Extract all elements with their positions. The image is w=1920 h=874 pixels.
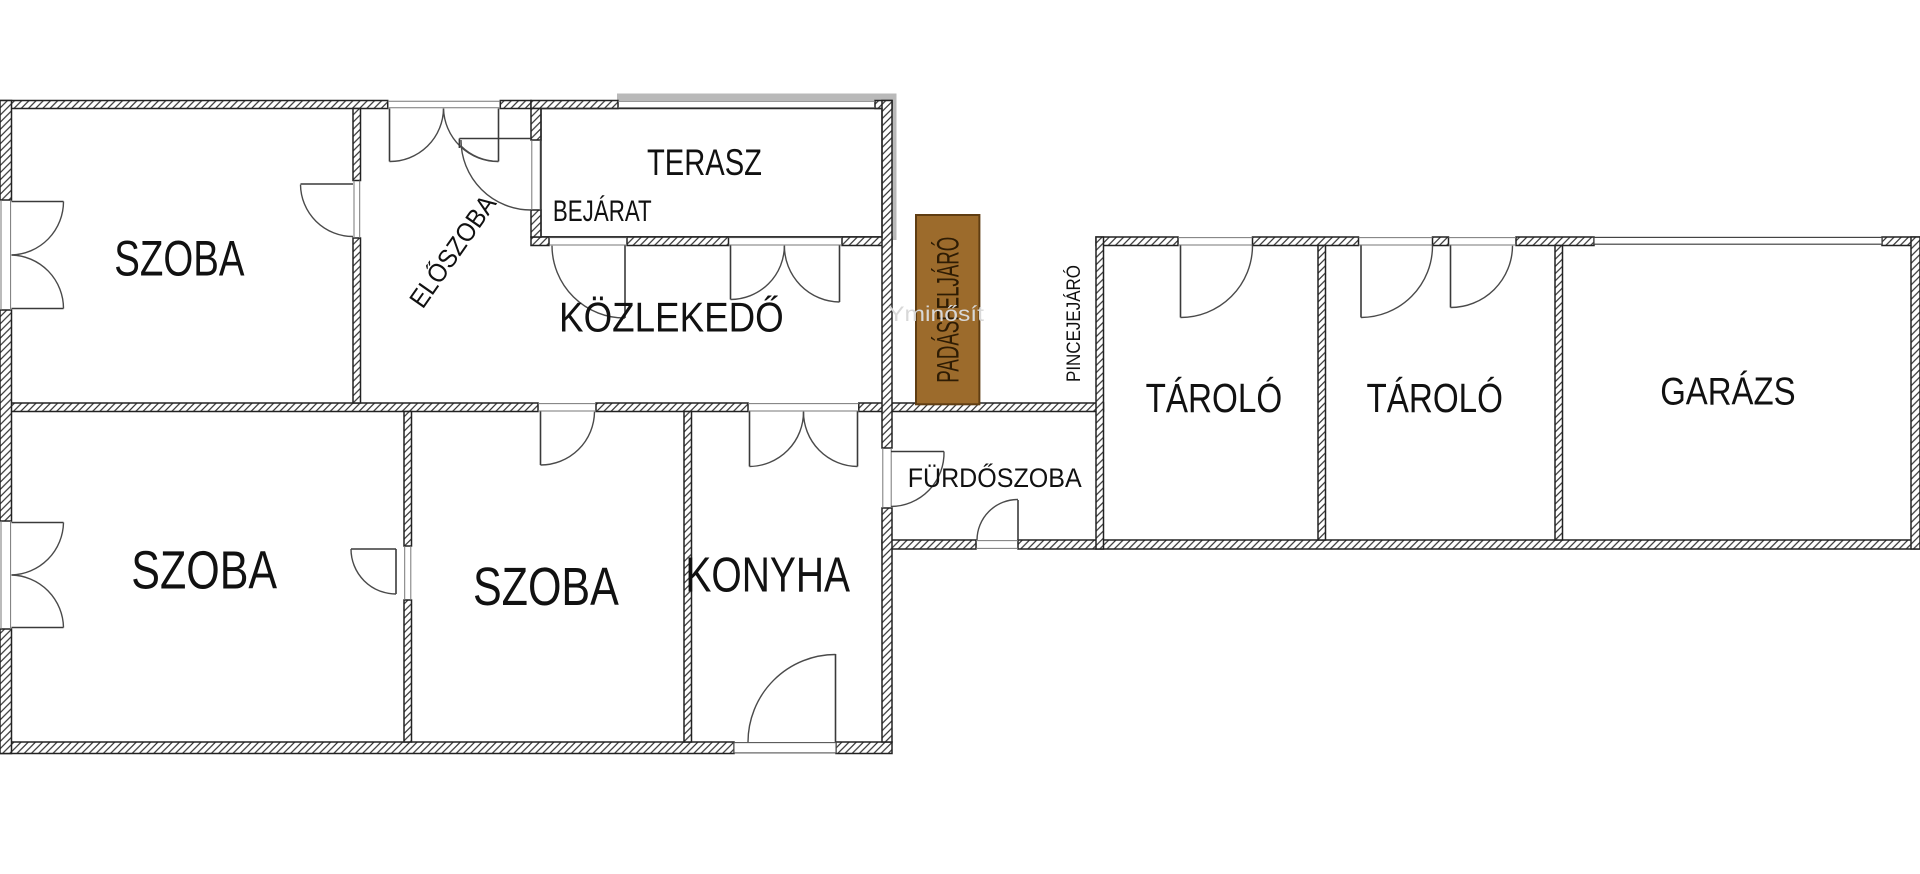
svg-text:KÖZLEKEDŐ: KÖZLEKEDŐ — [559, 294, 784, 341]
svg-text:GARÁZS: GARÁZS — [1660, 371, 1795, 414]
svg-text:TERASZ: TERASZ — [647, 142, 762, 183]
svg-text:PINCEJEJÁRÓ: PINCEJEJÁRÓ — [1063, 265, 1085, 382]
svg-text:FÜRDŐSZOBA: FÜRDŐSZOBA — [908, 462, 1082, 493]
svg-text:SZOBA: SZOBA — [473, 557, 619, 617]
svg-text:KONYHA: KONYHA — [685, 549, 850, 603]
svg-text:SZOBA: SZOBA — [114, 231, 245, 287]
svg-text:TÁROLÓ: TÁROLÓ — [1367, 375, 1503, 421]
svg-text:SZOBA: SZOBA — [131, 540, 277, 600]
svg-text:BEJÁRAT: BEJÁRAT — [553, 195, 652, 228]
svg-text:Yminősít: Yminősít — [888, 303, 984, 326]
svg-text:TÁROLÓ: TÁROLÓ — [1146, 375, 1283, 421]
